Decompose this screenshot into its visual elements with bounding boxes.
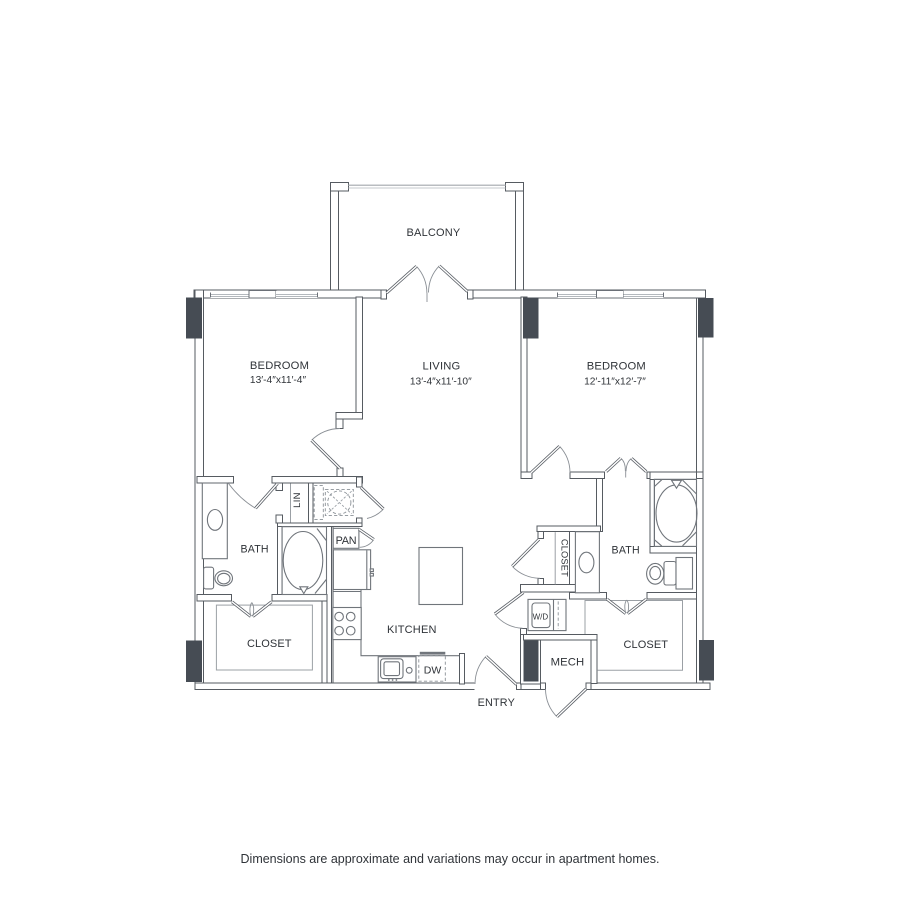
svg-text:LIVING: LIVING [423,361,461,373]
svg-text:BATH: BATH [612,545,640,557]
svg-text:LIN: LIN [292,492,303,508]
svg-text:ENTRY: ENTRY [478,697,515,709]
svg-text:W/D: W/D [533,613,549,622]
svg-text:12′-11″x12′-7″: 12′-11″x12′-7″ [584,377,646,388]
svg-text:13′-4″x11′-4″: 13′-4″x11′-4″ [250,375,307,386]
svg-text:CLOSET: CLOSET [560,539,570,577]
svg-text:13′-4″x11′-10″: 13′-4″x11′-10″ [410,377,472,388]
svg-text:DW: DW [424,665,442,677]
svg-text:Dimensions are approximate and: Dimensions are approximate and variation… [241,852,660,866]
svg-text:CLOSET: CLOSET [247,638,292,650]
svg-text:PAN: PAN [336,535,357,547]
svg-text:BATH: BATH [240,544,268,556]
svg-text:BALCONY: BALCONY [407,227,461,239]
svg-text:KITCHEN: KITCHEN [387,624,437,636]
svg-text:CLOSET: CLOSET [623,639,668,651]
svg-text:BEDROOM: BEDROOM [587,361,646,373]
svg-text:BEDROOM: BEDROOM [250,360,309,372]
svg-text:MECH: MECH [551,657,585,669]
